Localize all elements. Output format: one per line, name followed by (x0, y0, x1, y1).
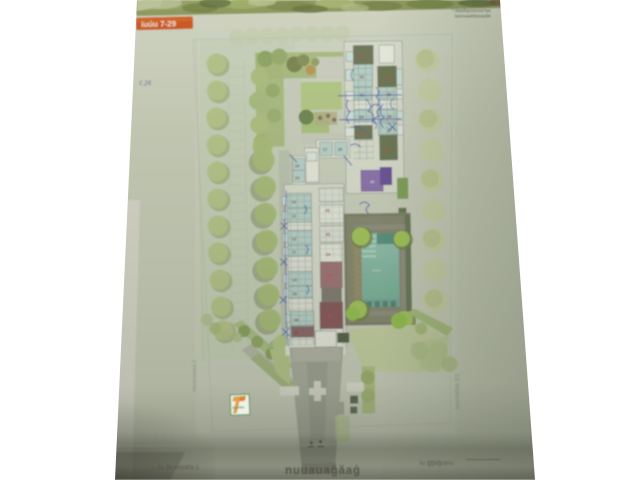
svg-text:ELEVEn: ELEVEn (233, 405, 245, 409)
svg-text:nuuauağăaģ: nuuauağăaģ (285, 464, 361, 477)
svg-text:lu ğğăğulnu: lu ğğăğulnu (420, 460, 454, 467)
svg-text:aaunadaa 2/1: aaunadaa 2/1 (455, 373, 461, 410)
svg-text:nauanadaa 2: nauanadaa 2 (192, 360, 198, 392)
svg-text:← lu Js:aouařa 1: ← lu Js:aouařa 1 (150, 464, 200, 471)
